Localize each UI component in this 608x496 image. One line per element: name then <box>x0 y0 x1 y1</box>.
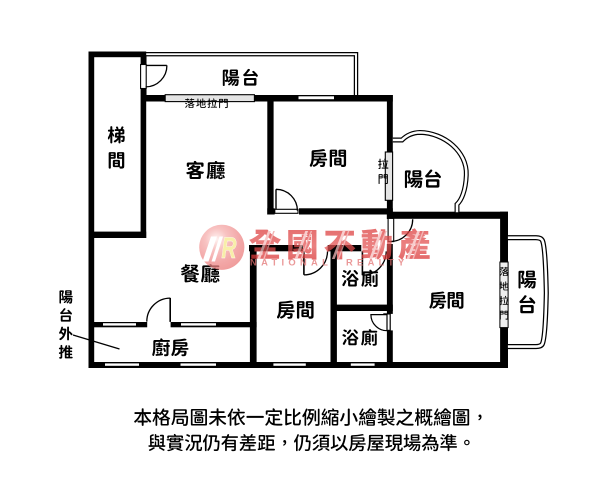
svg-text:NATIONAL REALTY: NATIONAL REALTY <box>250 257 409 268</box>
